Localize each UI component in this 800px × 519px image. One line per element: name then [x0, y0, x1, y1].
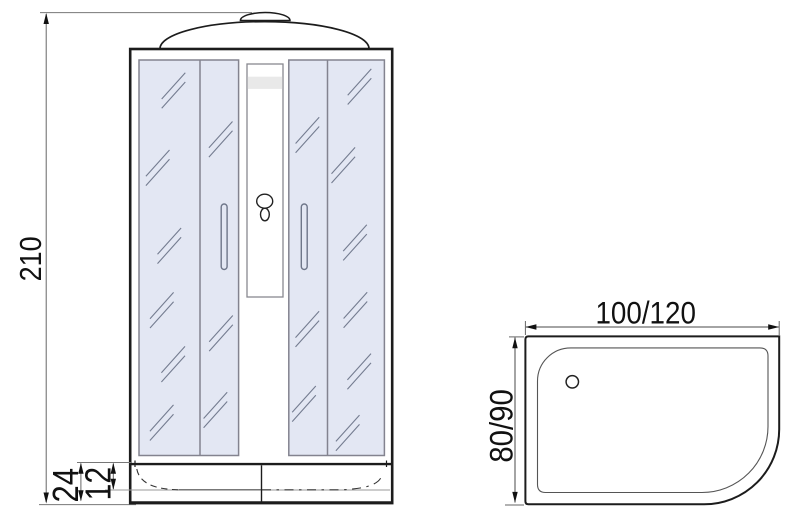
svg-text:100/120: 100/120: [595, 295, 696, 331]
svg-text:210: 210: [13, 236, 48, 281]
svg-text:12: 12: [78, 467, 119, 501]
svg-text:80/90: 80/90: [483, 389, 519, 463]
